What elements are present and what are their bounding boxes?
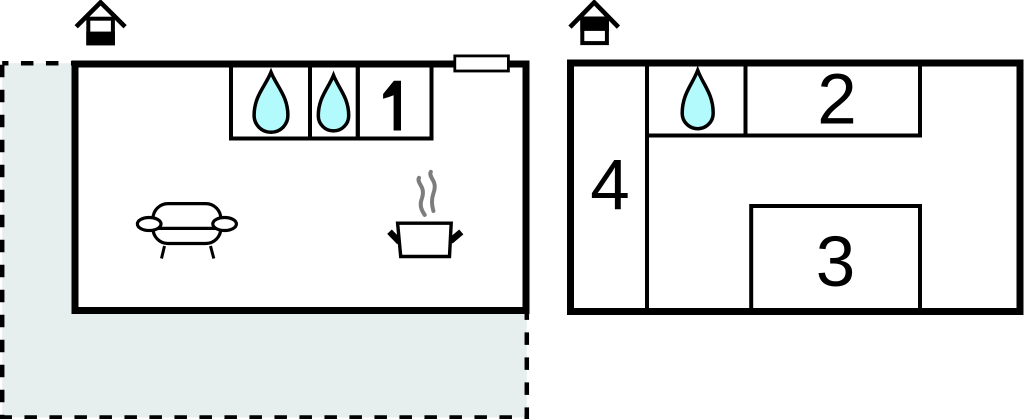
svg-text:4: 4 xyxy=(590,146,630,225)
svg-text:2: 2 xyxy=(817,61,857,140)
svg-text:3: 3 xyxy=(816,223,856,302)
